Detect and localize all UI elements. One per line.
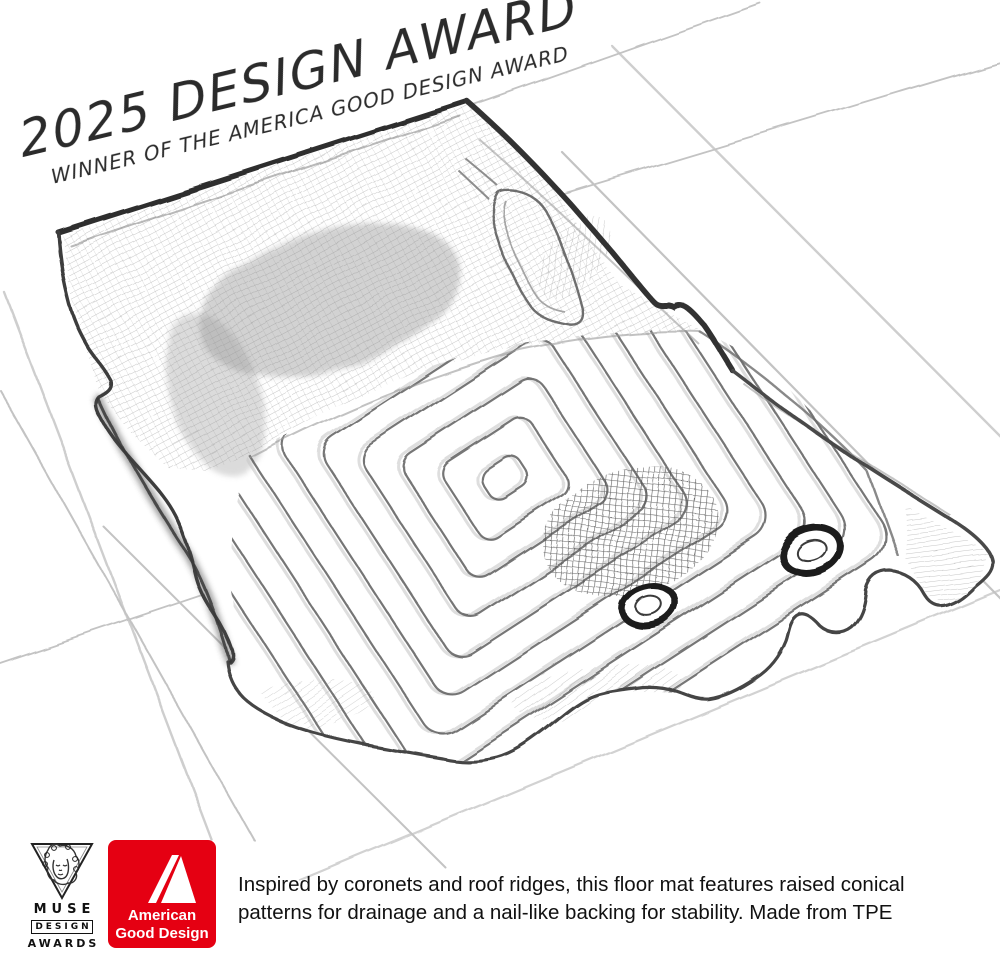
product-image: { "banner": { "title": "2025 DESIGN AWAR… — [0, 0, 1000, 952]
floor-mat-sketch — [0, 0, 1000, 952]
muse-design-awards-logo — [24, 836, 100, 952]
caption-line-2: patterns for drainage and a nail-like ba… — [238, 899, 938, 927]
product-caption: Inspired by coronets and roof ridges, th… — [238, 871, 938, 927]
caption-line-1: Inspired by coronets and roof ridges, th… — [238, 871, 938, 899]
agd-logo-word-good-design: Good Design — [108, 926, 216, 941]
muse-logo-word-design: DESIGN — [31, 920, 93, 934]
muse-face-triangle-icon — [32, 844, 92, 898]
agd-logo-word-american: American — [108, 908, 216, 923]
muse-logo-word-muse: MUSE — [24, 902, 100, 917]
muse-logo-word-awards: AWARDS — [24, 937, 100, 950]
american-good-design-logo: American Good Design — [108, 840, 216, 948]
